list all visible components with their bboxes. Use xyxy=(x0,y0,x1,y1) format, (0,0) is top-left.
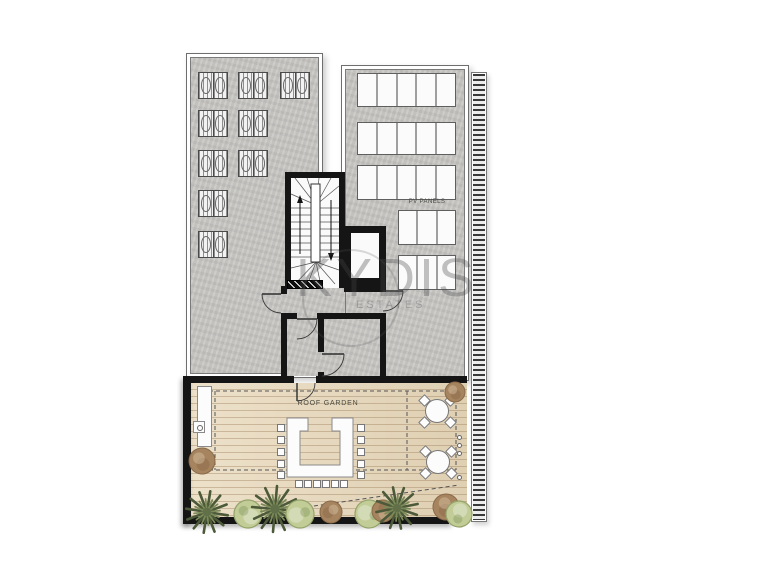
dining-chair xyxy=(322,480,330,488)
railing-post xyxy=(457,475,462,480)
dining-chair xyxy=(277,424,285,432)
ac-unit-half xyxy=(199,151,213,176)
pv-panel-cell xyxy=(358,166,376,199)
dining-chair xyxy=(295,480,303,488)
ac-unit-half xyxy=(213,73,228,98)
garden-top-wall-b xyxy=(316,376,467,383)
pv-panel-cell xyxy=(399,256,416,289)
ac-fan xyxy=(215,236,225,253)
pv-panel-cell xyxy=(415,74,435,106)
ac-fan xyxy=(297,77,307,94)
room-area xyxy=(318,313,386,376)
ac-fan xyxy=(201,236,211,253)
pv-panel-cell xyxy=(436,256,455,289)
ac-unit xyxy=(198,150,228,177)
pv-panel-cell xyxy=(396,74,416,106)
dining-chair xyxy=(277,471,285,479)
ac-unit-half xyxy=(199,111,213,136)
dining-chair xyxy=(357,436,365,444)
ac-unit-half xyxy=(253,111,268,136)
room-top-wall-a xyxy=(281,313,297,319)
ac-unit-half xyxy=(199,191,213,216)
ac-unit-half xyxy=(213,232,228,257)
ac-unit-half xyxy=(213,191,228,216)
round-table xyxy=(425,399,449,423)
pv-panel-row xyxy=(398,255,456,290)
pv-panel-row xyxy=(357,73,456,107)
ac-fan xyxy=(201,115,211,132)
garden-bench xyxy=(197,386,212,447)
ac-fan xyxy=(255,115,265,132)
pv-panel-cell xyxy=(436,211,455,244)
ac-unit xyxy=(238,150,268,177)
ac-fan xyxy=(241,115,251,132)
pv-panel-cell xyxy=(435,123,455,154)
pv-panel-cell xyxy=(358,123,376,154)
ac-unit xyxy=(198,110,228,137)
dining-chair xyxy=(340,480,348,488)
garden-bottom-edge xyxy=(449,517,467,521)
ac-fan xyxy=(241,77,251,94)
ac-unit-half xyxy=(199,73,213,98)
dining-chair xyxy=(313,480,321,488)
pv-panel-cell xyxy=(416,256,435,289)
elevator-shaft-interior xyxy=(351,233,379,278)
dining-chair xyxy=(304,480,312,488)
garden-bottom-wall xyxy=(183,517,449,524)
railing-post xyxy=(457,395,462,400)
pv-panel-cell xyxy=(415,123,435,154)
ac-fan xyxy=(201,77,211,94)
ac-unit xyxy=(238,72,268,99)
ac-fan xyxy=(215,115,225,132)
dining-chair xyxy=(331,480,339,488)
roof-hatch xyxy=(287,280,323,289)
garden-left-wall xyxy=(183,376,191,524)
dining-chair xyxy=(277,460,285,468)
ac-unit xyxy=(238,110,268,137)
pv-panel-cell xyxy=(396,166,416,199)
hall-wall-lower xyxy=(281,313,287,376)
elevator-shaft xyxy=(344,226,386,292)
railing-post xyxy=(457,387,462,392)
ac-unit-half xyxy=(239,151,253,176)
ac-fan xyxy=(215,155,225,172)
louver-fins xyxy=(473,74,485,520)
dining-chair xyxy=(357,471,365,479)
pv-panel-row xyxy=(357,165,456,200)
pv-panel-row xyxy=(357,122,456,155)
ac-unit-half xyxy=(239,73,253,98)
ac-fan xyxy=(215,77,225,94)
ac-unit-half xyxy=(253,73,268,98)
ac-unit xyxy=(198,190,228,217)
railing-post xyxy=(457,451,462,456)
ac-fan xyxy=(241,155,251,172)
ac-unit xyxy=(198,231,228,258)
ac-unit-half xyxy=(253,151,268,176)
garden-fixture xyxy=(193,421,205,433)
ac-unit-half xyxy=(239,111,253,136)
roof-floor-plan: PV PANELS ROOF GARDEN KYDIS ESTATES xyxy=(0,0,768,579)
pv-panel-cell xyxy=(376,123,396,154)
dining-chair xyxy=(357,448,365,456)
pv-panel-cell xyxy=(396,123,416,154)
dining-chair xyxy=(357,460,365,468)
railing-post xyxy=(457,443,462,448)
pv-panels-label: PV PANELS xyxy=(398,199,456,205)
pv-panel-cell xyxy=(376,74,396,106)
ac-fan xyxy=(255,77,265,94)
pv-panel-cell xyxy=(399,211,416,244)
ac-fan xyxy=(255,155,265,172)
ac-fan xyxy=(215,195,225,212)
ac-unit-half xyxy=(295,73,310,98)
ac-fan xyxy=(201,195,211,212)
ac-fan xyxy=(283,77,293,94)
ac-unit xyxy=(280,72,310,99)
pv-panel-cell xyxy=(416,211,435,244)
pv-panel-cell xyxy=(435,166,455,199)
dining-chair xyxy=(277,448,285,456)
dining-chair xyxy=(277,436,285,444)
room-left-stub xyxy=(318,372,324,376)
pv-panel-cell xyxy=(376,166,396,199)
ac-unit xyxy=(198,72,228,99)
ac-unit-half xyxy=(281,73,295,98)
ac-unit-half xyxy=(213,151,228,176)
room-top-wall-b xyxy=(317,313,386,319)
ac-unit-half xyxy=(213,111,228,136)
railing-post xyxy=(457,435,462,440)
garden-top-wall-a xyxy=(186,376,294,383)
ac-unit-half xyxy=(199,232,213,257)
room-left-wall xyxy=(318,319,324,352)
pv-panel-cell xyxy=(358,74,376,106)
louver-screen xyxy=(471,72,487,522)
pv-panel-cell xyxy=(435,74,455,106)
round-table xyxy=(426,450,450,474)
ac-fan xyxy=(201,155,211,172)
roof-garden-label: ROOF GARDEN xyxy=(297,400,359,407)
fixture-dot xyxy=(197,425,203,431)
dining-chair xyxy=(357,424,365,432)
pv-panel-row xyxy=(398,210,456,245)
pv-panel-cell xyxy=(415,166,435,199)
room-right-wall xyxy=(380,319,386,376)
